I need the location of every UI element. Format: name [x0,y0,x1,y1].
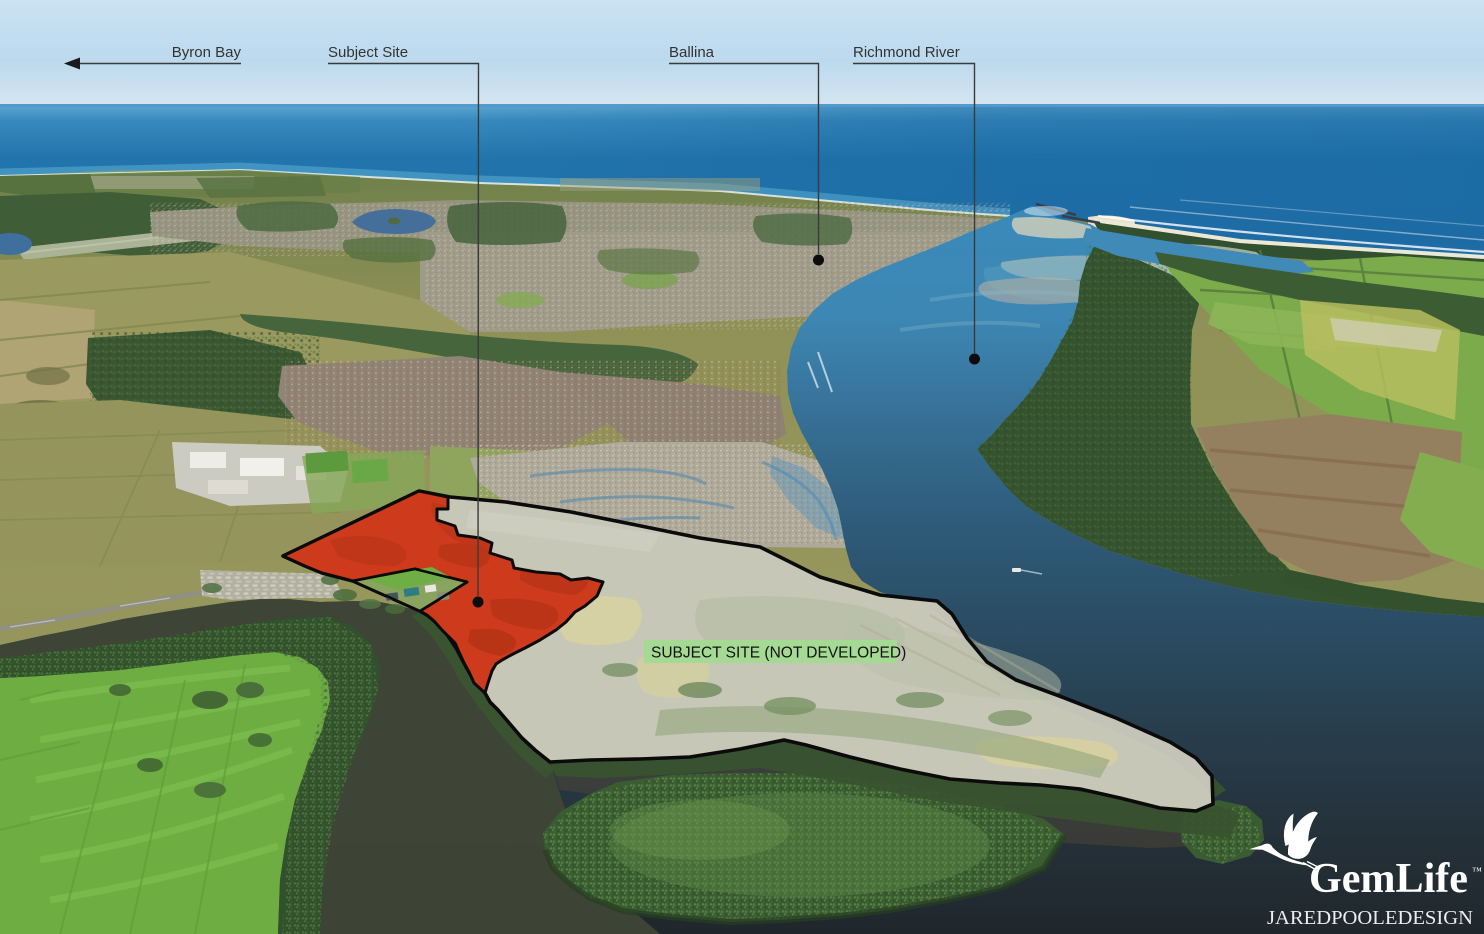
svg-text:SUBJECT SITE (NOT DEVELOPED): SUBJECT SITE (NOT DEVELOPED) [651,645,906,662]
svg-text:Byron Bay: Byron Bay [172,44,242,61]
svg-text:™: ™ [1472,866,1482,877]
svg-text:Subject Site: Subject Site [328,44,408,61]
svg-text:Richmond River: Richmond River [853,44,960,61]
svg-text:Ballina: Ballina [669,44,715,61]
svg-text:GemLife: GemLife [1309,856,1468,902]
svg-text:JAREDPOOLEDESIGN: JAREDPOOLEDESIGN [1267,907,1473,929]
